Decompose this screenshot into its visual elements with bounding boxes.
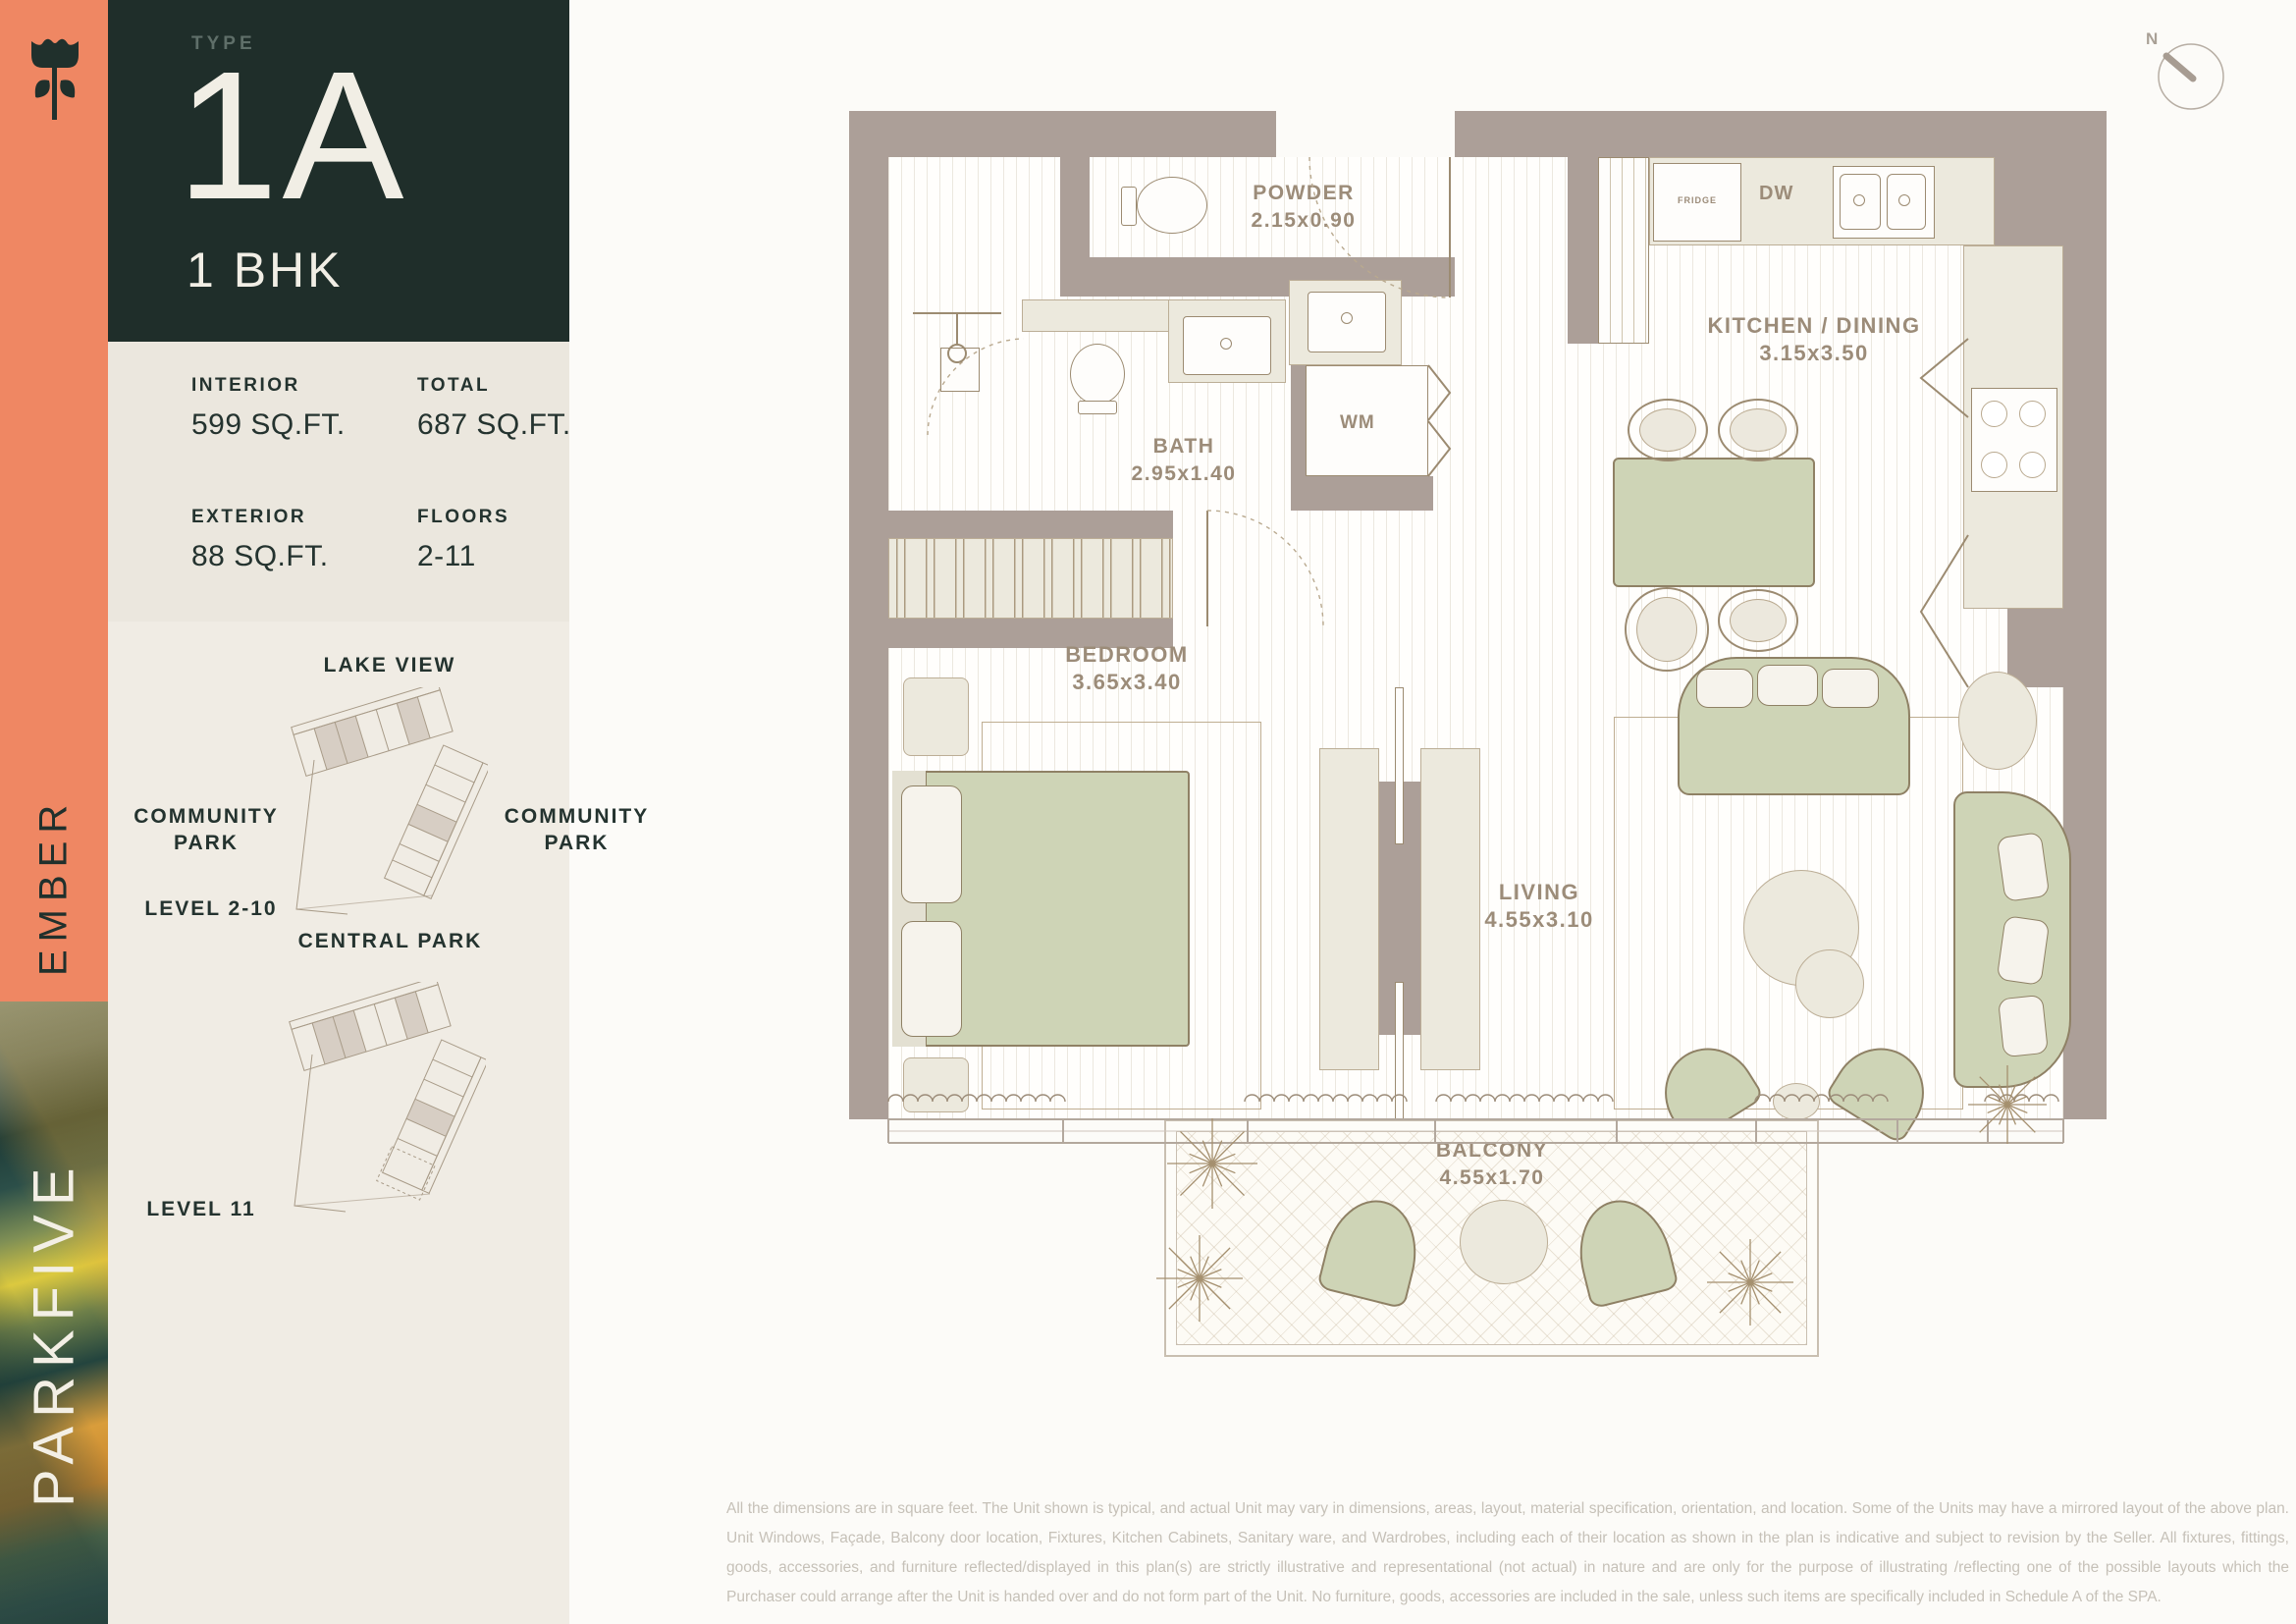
side-table xyxy=(1958,672,2037,770)
dining-chair xyxy=(1718,589,1798,652)
stat-interior: INTERIOR 599 SQ.FT. xyxy=(191,375,346,442)
sofa-pillow xyxy=(1997,915,2051,986)
powder-toilet-bowl xyxy=(1137,177,1207,234)
kitchen-tall-cabinet xyxy=(1598,157,1649,344)
sliding-door-track xyxy=(1395,687,1404,844)
label-community-park-right: COMMUNITY PARK xyxy=(496,803,658,856)
label-lake-view: LAKE VIEW xyxy=(272,652,507,678)
nightstand xyxy=(903,677,969,756)
room-label-balcony: BALCONY4.55x1.70 xyxy=(1394,1137,1590,1192)
floorplan-brochure-page: EMBER PARKFIVE TYPE 1A 1 BHK INTERIOR 59… xyxy=(0,0,2296,1624)
stat-exterior-label: EXTERIOR xyxy=(191,507,329,528)
coffee-table-small xyxy=(1795,949,1864,1018)
disclaimer-text: All the dimensions are in square feet. T… xyxy=(726,1494,2289,1612)
wall-hall-kitchen xyxy=(1568,157,1598,344)
wall-bath-bottom xyxy=(888,511,1173,538)
room-label-living: LIVING4.55x3.10 xyxy=(1441,879,1637,934)
stat-total-label: TOTAL xyxy=(417,375,571,397)
site-plan-level-11-diagram xyxy=(285,982,486,1218)
shower-drain xyxy=(940,348,980,392)
dining-table xyxy=(1613,458,1815,587)
stat-floors: FLOORS 2-11 xyxy=(417,507,509,573)
wardrobe xyxy=(888,538,1173,619)
fridge: FRIDGE xyxy=(1653,163,1741,242)
stat-total: TOTAL 687 SQ.FT. xyxy=(417,375,571,442)
dining-chair xyxy=(1718,399,1798,461)
stat-total-value: 687 SQ.FT. xyxy=(417,408,571,442)
powder-toilet-tank xyxy=(1121,187,1137,226)
stat-exterior-value: 88 SQ.FT. xyxy=(191,540,329,573)
sofa-pillow xyxy=(1822,669,1879,708)
kitchen-sink-drain-left xyxy=(1853,194,1865,206)
fridge-label: FRIDGE xyxy=(1654,195,1740,205)
stat-floors-label: FLOORS xyxy=(417,507,509,528)
room-label-powder: POWDER2.15x0.90 xyxy=(1205,180,1402,235)
powder-sink-drain xyxy=(1341,312,1353,324)
bath-toilet-bowl xyxy=(1070,344,1125,405)
site-plan-level-2-10-diagram xyxy=(287,687,488,918)
sofa-pillow xyxy=(1757,665,1818,706)
wall-corner-topright xyxy=(1995,111,2107,257)
sliding-door-panel xyxy=(1319,748,1379,1070)
hob xyxy=(1971,388,2057,492)
label-central-park: CENTRAL PARK xyxy=(294,928,486,954)
stat-interior-label: INTERIOR xyxy=(191,375,346,397)
sofa-pillow xyxy=(1696,669,1753,708)
compass-icon xyxy=(2120,20,2238,118)
bed-pillow xyxy=(901,785,962,903)
balcony-table xyxy=(1460,1200,1548,1284)
nightstand xyxy=(903,1057,969,1112)
stat-exterior: EXTERIOR 88 SQ.FT. xyxy=(191,507,329,573)
dining-chair xyxy=(1625,587,1709,672)
stat-floors-value: 2-11 xyxy=(417,540,509,573)
wall-wm-bottom xyxy=(1291,476,1433,511)
sofa-pillow xyxy=(1998,995,2049,1057)
project-name-vertical: PARKFIVE xyxy=(0,1058,108,1608)
bath-toilet-tank xyxy=(1078,401,1117,414)
label-level-2-10: LEVEL 2-10 xyxy=(118,895,304,922)
bath-shelf xyxy=(1022,299,1169,332)
unit-config: 1 BHK xyxy=(187,242,344,298)
wall-kitchen-living xyxy=(2007,609,2063,687)
bed-pillow xyxy=(901,921,962,1037)
kitchen-sink-drain-right xyxy=(1898,194,1910,206)
label-dishwasher: DW xyxy=(1759,183,1793,205)
stat-interior-value: 599 SQ.FT. xyxy=(191,408,346,442)
parkfive-logo-icon xyxy=(24,35,86,122)
dining-chair xyxy=(1628,399,1708,461)
label-level-11: LEVEL 11 xyxy=(108,1196,294,1222)
side-table-small xyxy=(1773,1083,1820,1120)
building-name-vertical: EMBER xyxy=(0,793,108,980)
wall-top-right xyxy=(1455,111,1995,157)
label-washing-machine: WM xyxy=(1340,412,1375,434)
unit-type: 1A xyxy=(177,45,408,228)
sofa-pillow xyxy=(1997,832,2051,902)
room-label-bedroom: BEDROOM3.65x3.40 xyxy=(1029,641,1225,696)
bath-sink-drain xyxy=(1220,338,1232,350)
wall-left xyxy=(849,157,888,1119)
compass-north-label: N xyxy=(2146,29,2159,49)
sliding-door-track xyxy=(1395,982,1404,1139)
room-label-bath: BATH2.95x1.40 xyxy=(1086,433,1282,488)
wall-top-left xyxy=(849,111,1276,157)
room-label-kitchen: KITCHEN / DINING3.15x3.50 xyxy=(1667,312,1961,367)
label-community-park-left: COMMUNITY PARK xyxy=(128,803,285,856)
